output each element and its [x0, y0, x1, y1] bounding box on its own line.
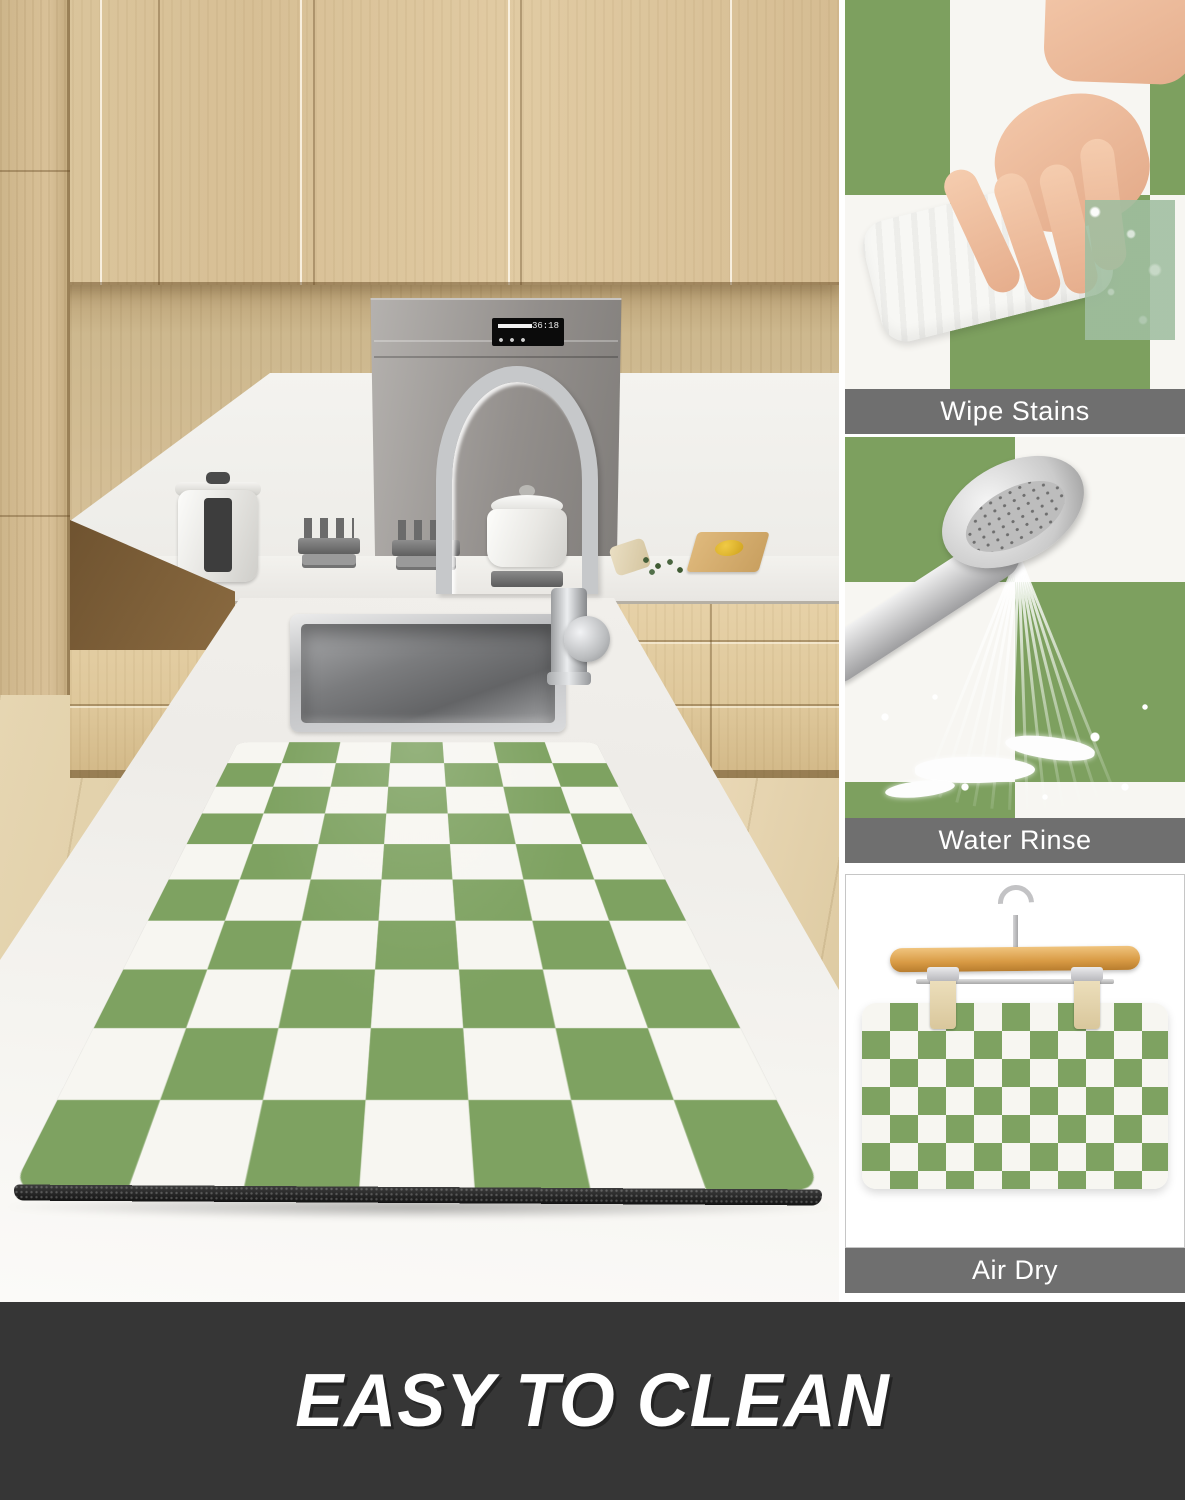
pressure-cooker-panel [204, 498, 232, 572]
hanger-clip [930, 971, 956, 1029]
faucet-base [547, 672, 591, 685]
pressure-cooker-handle [206, 472, 230, 484]
faucet-joint [564, 616, 610, 662]
shower-head-nozzles [955, 466, 1077, 566]
panel-air-dry [845, 874, 1185, 1248]
range-hood-groove [374, 356, 618, 358]
burner-posts [304, 518, 354, 540]
cabinet-door-seam [158, 0, 160, 285]
stainless-sink [290, 614, 566, 732]
tall-pantry-cabinet [0, 0, 70, 695]
kitchen-scene-photo: 36:18 [0, 0, 839, 1302]
lemon-on-board [713, 540, 746, 556]
cabinet-door-seam [0, 170, 70, 172]
label-text: Air Dry [972, 1255, 1058, 1286]
faucet-gooseneck [436, 366, 598, 594]
label-air-dry: Air Dry [845, 1248, 1185, 1293]
cabinet-seam [710, 604, 712, 778]
cabinet-handle-groove [730, 0, 732, 285]
label-wipe-stains: Wipe Stains [845, 389, 1185, 434]
water-splash-droplets [845, 677, 1185, 817]
burner-base [302, 554, 356, 568]
bottom-banner: EASY TO CLEAN [0, 1302, 1185, 1500]
cutting-board [686, 532, 769, 572]
cabinet-handle-groove [100, 0, 102, 285]
range-hood-display: 36:18 [492, 318, 564, 346]
label-text: Wipe Stains [940, 396, 1090, 427]
forearm [1043, 0, 1185, 85]
display-indicator-bar [498, 324, 532, 328]
herb-sprigs [638, 552, 686, 578]
cabinet-bottom-edge [0, 282, 839, 285]
upper-cabinets [0, 0, 839, 285]
pressure-cooker [178, 476, 258, 582]
water-droplets [1085, 200, 1175, 340]
panel-water-rinse [845, 437, 1185, 818]
cabinet-handle-groove [300, 0, 302, 285]
panel-wipe-stains [845, 0, 1185, 389]
cabinet-door-seam [0, 515, 70, 517]
label-text: Water Rinse [938, 825, 1091, 856]
burner-grate [298, 538, 360, 554]
hanging-checkerboard-mat [862, 1003, 1168, 1189]
product-image-canvas: 36:18 [0, 0, 1185, 1500]
herb-bag [612, 540, 690, 584]
display-buttons [498, 338, 528, 342]
sink-basin [301, 624, 555, 723]
cabinet-door-seam [313, 0, 315, 285]
label-water-rinse: Water Rinse [845, 818, 1185, 863]
banner-title: EASY TO CLEAN [295, 1358, 889, 1443]
hanger-clip [1074, 971, 1100, 1029]
cabinet-door-seam [520, 0, 522, 285]
display-digits: 36:18 [532, 321, 559, 331]
hanger-hook-stem [1013, 915, 1018, 947]
cabinet-handle-groove [508, 0, 510, 285]
gas-burner [298, 516, 360, 568]
